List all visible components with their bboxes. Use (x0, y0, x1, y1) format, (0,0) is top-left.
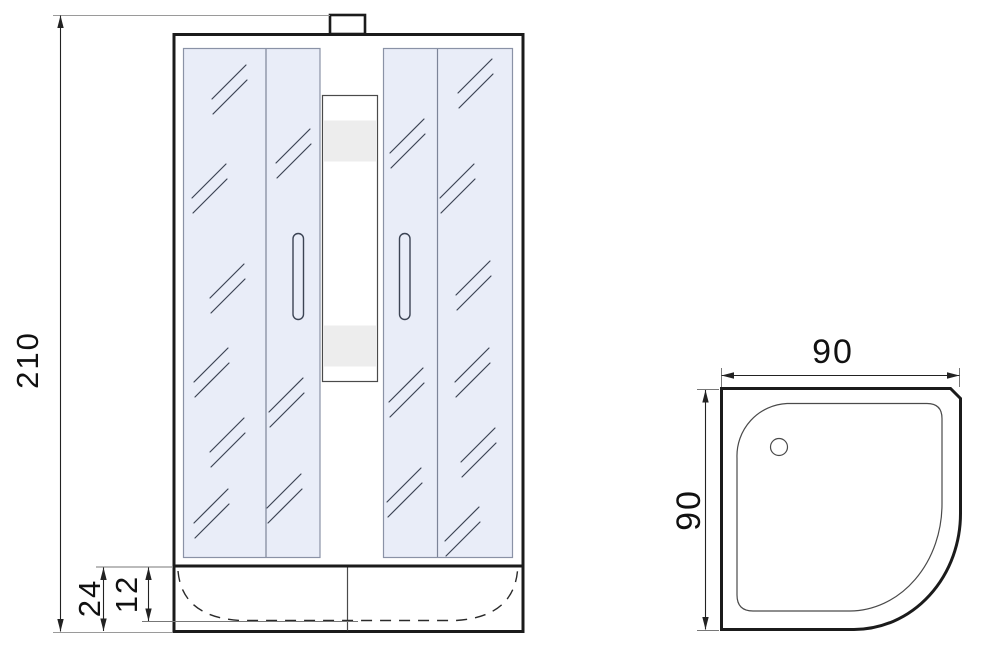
glass-panel-right (384, 49, 513, 558)
drain-icon (771, 439, 788, 456)
front-view: 210 24 12 (10, 15, 525, 633)
shelf-lower (324, 326, 376, 367)
shelf-upper (324, 121, 376, 162)
roof-vent-box (330, 15, 365, 34)
top-view: 90 90 (670, 333, 961, 631)
tray-outer-outline (722, 389, 961, 630)
width-dimension-label: 90 (812, 333, 854, 371)
tray-height-dimension-label: 24 (72, 579, 107, 617)
drawing-canvas: 210 24 12 90 90 (0, 0, 986, 653)
technical-drawing: 210 24 12 90 90 (0, 0, 986, 653)
tray-inner-depth-dimension-label: 12 (109, 575, 144, 613)
depth-dimension-label: 90 (670, 489, 708, 531)
height-dimension-label: 210 (10, 331, 45, 389)
glass-panel-left (184, 49, 321, 558)
